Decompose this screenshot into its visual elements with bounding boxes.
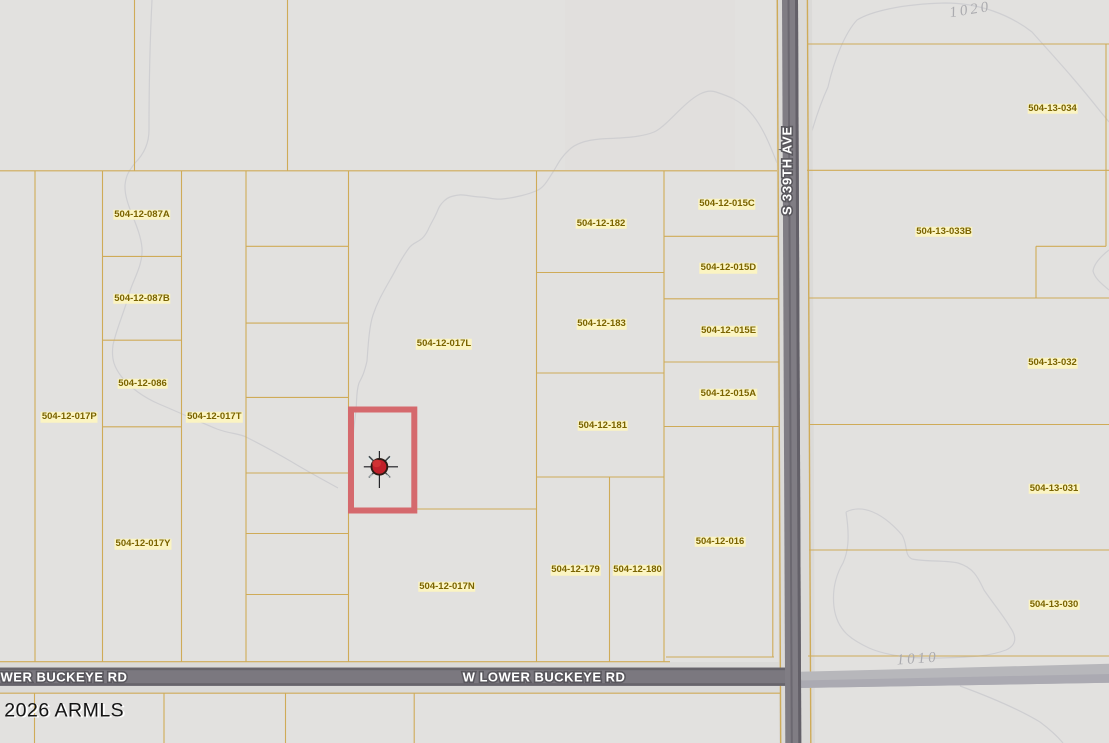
svg-text:1010: 1010	[896, 650, 939, 669]
svg-text:© 2026 ARMLS: © 2026 ARMLS	[0, 700, 124, 722]
svg-text:S 339TH AVE: S 339TH AVE	[780, 126, 795, 215]
svg-text:W LOWER BUCKEYE RD: W LOWER BUCKEYE RD	[0, 670, 127, 685]
svg-text:W LOWER BUCKEYE RD: W LOWER BUCKEYE RD	[463, 670, 626, 685]
